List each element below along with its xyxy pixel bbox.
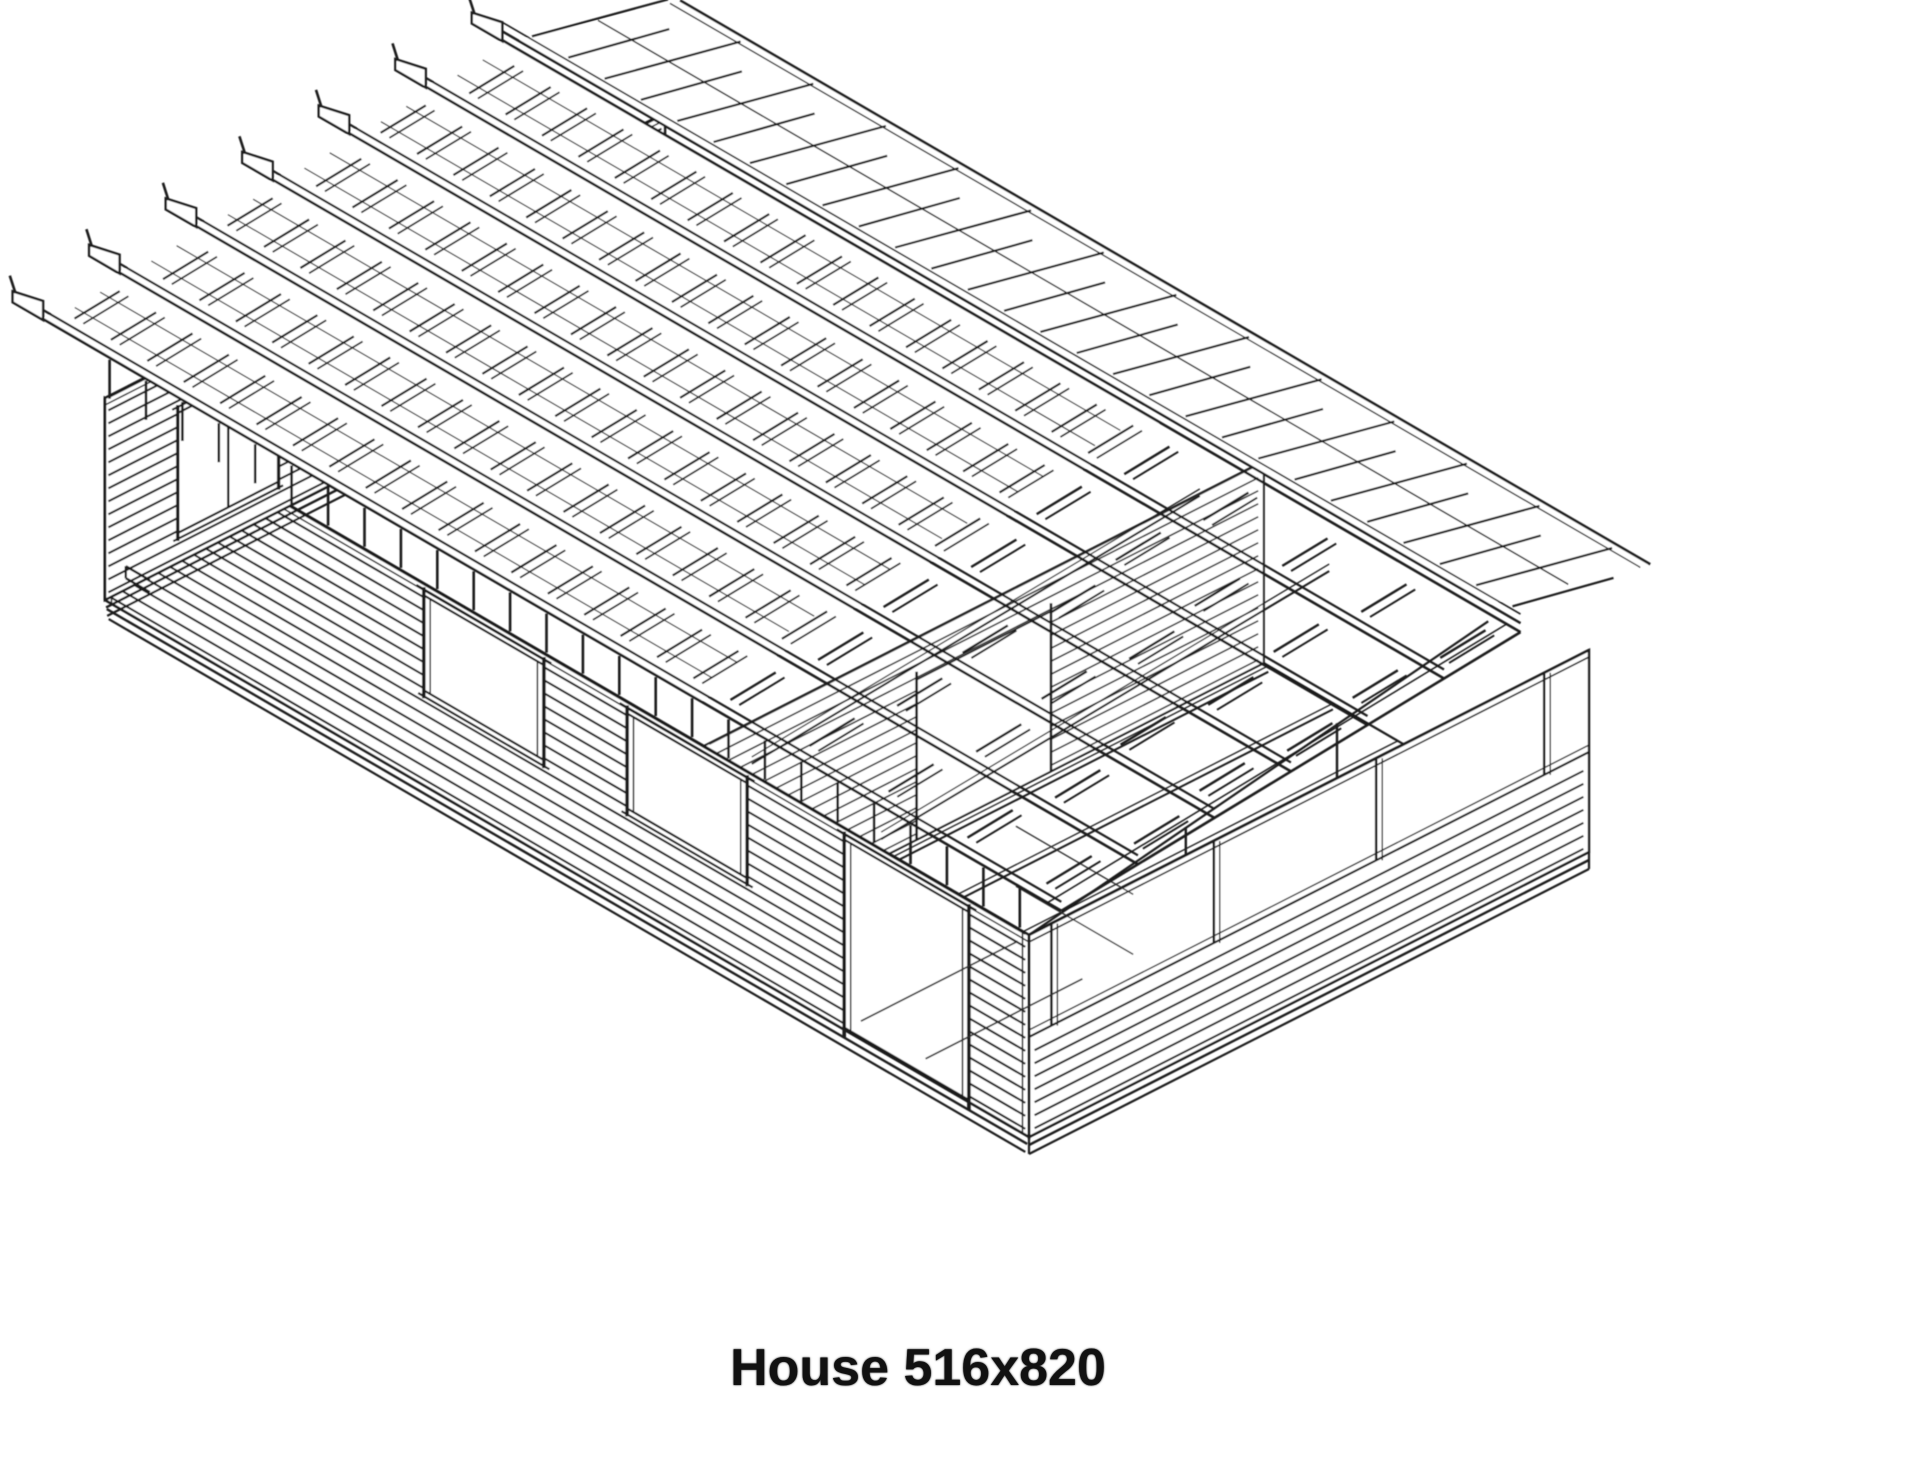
drawing-caption: House 516x820 — [730, 1338, 1106, 1398]
drawing-sheet: House 516x820 — [0, 0, 1920, 1462]
house-isometric-drawing — [0, 0, 1920, 1462]
